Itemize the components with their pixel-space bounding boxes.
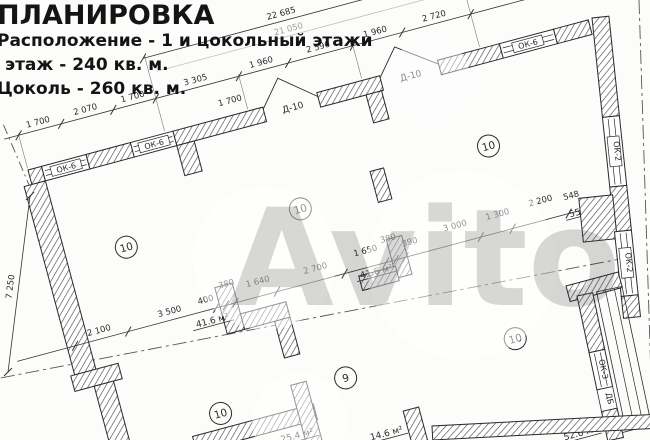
room-number: 10 xyxy=(481,139,497,154)
window-ok2-1: ОК-2 xyxy=(602,116,626,187)
dim-label-overall: 22 685 xyxy=(266,5,297,22)
header-location-line: Расположение - 1 и цокольный этажи xyxy=(0,33,373,50)
dim-label: 2 720 xyxy=(421,9,447,25)
window-ok6-1: ОК-6 xyxy=(42,154,90,180)
watermark: Avito xyxy=(193,38,621,440)
window-ok3: ОК-3 xyxy=(589,349,613,389)
dimension-left: 7 250 xyxy=(4,192,34,376)
watermark-circle xyxy=(390,38,470,118)
door-db: ДБ xyxy=(597,387,617,412)
watermark-text: Avito xyxy=(229,180,620,337)
dim-label: 3 305 xyxy=(183,73,209,89)
dim-label: 1 700 xyxy=(25,115,51,131)
window-ok6-2: ОК-6 xyxy=(130,131,176,157)
window-ok6-3: ОК-6 xyxy=(499,29,557,58)
dim-label-extra: 1 700 xyxy=(217,93,243,109)
page-title: ПЛАНИРОВКА xyxy=(0,2,214,29)
door-d10-1: Д-10 xyxy=(257,69,321,120)
room-number: 10 xyxy=(119,240,135,255)
watermark-circle xyxy=(252,372,348,440)
left-wall xyxy=(20,175,141,440)
room-number: 9 xyxy=(341,372,351,385)
dim-label: 2 070 xyxy=(72,102,98,118)
floorplan-image: 22 685 21 050 1 700 2 070 1 700 3 305 1 … xyxy=(0,0,650,440)
header-basement-line: Цоколь - 260 кв. м. xyxy=(0,81,186,98)
header-floor-line: этаж - 240 кв. м. xyxy=(5,57,169,74)
door-label: Д-10 xyxy=(281,101,305,116)
room-number: 10 xyxy=(213,407,229,422)
dim-label: 1 960 xyxy=(248,55,274,71)
area-label: 14.6 м² xyxy=(369,425,404,440)
dim-label-left: 7 250 xyxy=(5,274,18,299)
